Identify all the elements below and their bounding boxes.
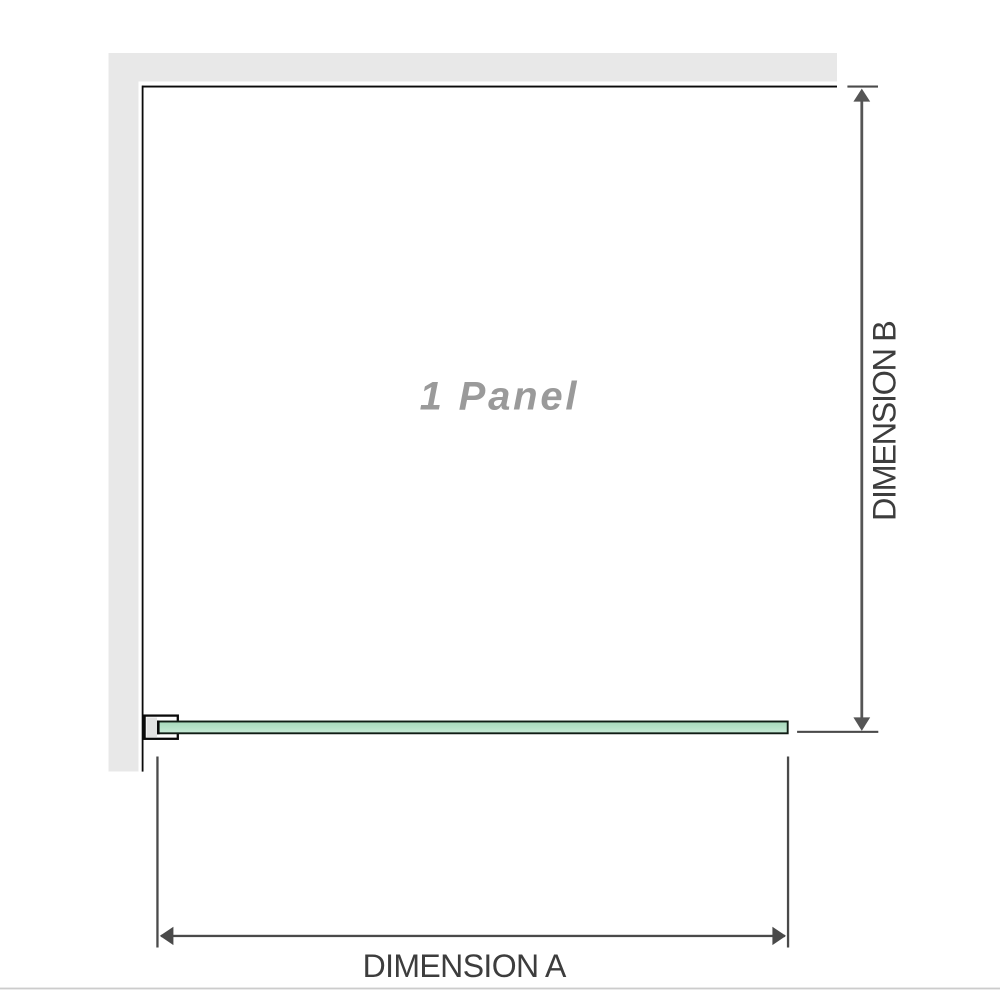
svg-text:DIMENSION A: DIMENSION A	[363, 948, 567, 984]
svg-text:1 Panel: 1 Panel	[420, 375, 580, 419]
svg-text:DIMENSION B: DIMENSION B	[867, 322, 903, 521]
